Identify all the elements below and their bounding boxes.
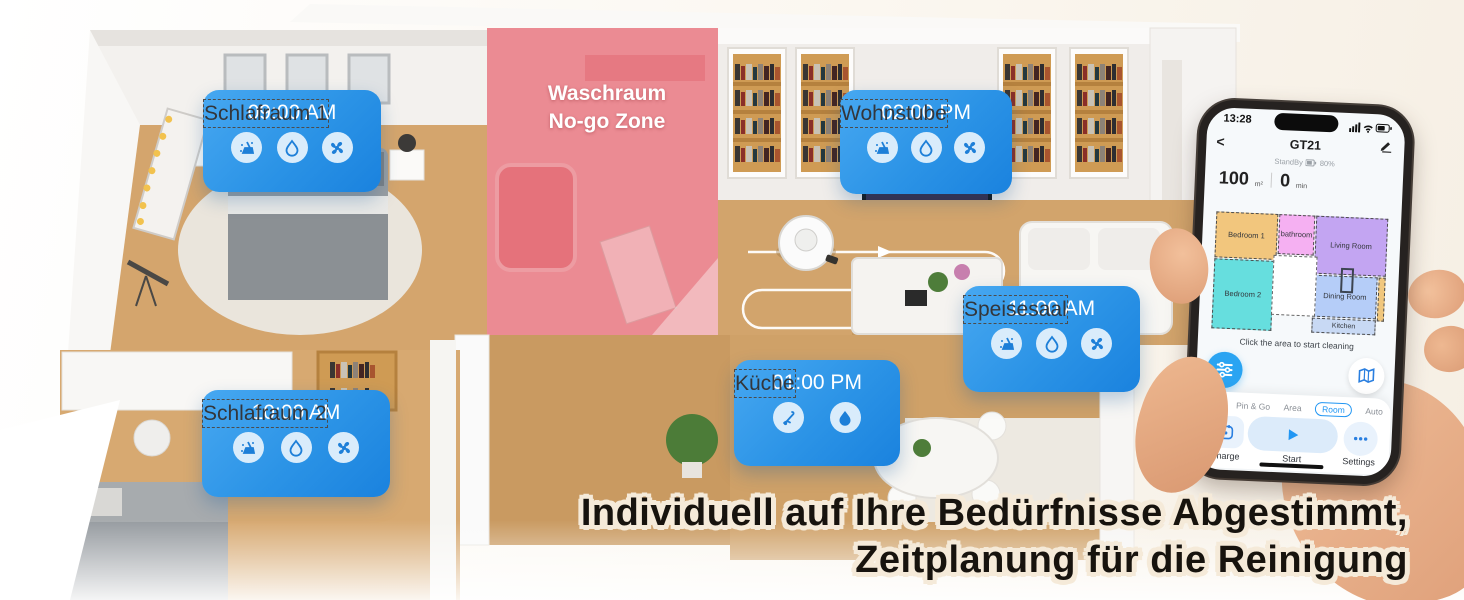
card-room-name: Schlafraum 2 (202, 399, 328, 428)
water-drop-icon (911, 132, 942, 163)
time-value: 0 (1280, 170, 1291, 191)
card-room-name: Wohnstube (840, 99, 948, 128)
map-icon (1357, 367, 1376, 386)
water-drop-icon (281, 432, 312, 463)
app-floor-map: Bedroom 1 bathroom Living Room Bedroom 2… (1211, 211, 1388, 336)
schedule-card-schlafraum-2: Schlafraum 2 10:00 AM (202, 390, 390, 497)
area-unit: m² (1254, 181, 1263, 190)
tab-area[interactable]: Area (1283, 402, 1301, 413)
map-room-bedroom1[interactable]: Bedroom 1 (1214, 211, 1278, 260)
mop-icon (773, 402, 804, 433)
promo-image: Waschraum No-go Zone Schlafraum 1 09:00 … (0, 0, 1464, 600)
map-hint-text: Click the area to start cleaning (1198, 335, 1396, 354)
map-room-bedroom2[interactable]: Bedroom 2 (1211, 258, 1274, 331)
no-go-zone-label: Waschraum No-go Zone (497, 80, 717, 136)
tab-room[interactable]: Room (1315, 402, 1352, 418)
water-drop-icon (277, 132, 308, 163)
fan-icon (328, 432, 359, 463)
sweep-icon (867, 132, 898, 163)
battery-icon (1376, 124, 1392, 132)
map-manage-button[interactable] (1348, 357, 1386, 395)
no-go-zone-title: Waschraum (497, 80, 717, 108)
card-room-name: Schlafraum 1 (203, 99, 329, 128)
time-unit: min (1296, 183, 1308, 192)
no-go-zone-overlay (487, 28, 718, 335)
map-table-marker (1340, 268, 1354, 294)
fan-icon (322, 132, 353, 163)
schedule-card-kueche: Küche 01:00 PM (734, 360, 900, 466)
schedule-card-wohnstube: Wohnstube 02:00 PM (840, 90, 1012, 194)
device-battery: 80% (1320, 159, 1335, 169)
signal-icon (1349, 122, 1360, 132)
sweep-icon (233, 432, 264, 463)
cleaning-stats: 100 m² 0 min (1218, 167, 1307, 192)
phone-notch (1274, 113, 1339, 133)
water-drop-icon (830, 402, 861, 433)
map-room-diningroom[interactable]: Dining Room (1312, 275, 1378, 320)
map-hallway (1271, 255, 1318, 317)
fan-icon (954, 132, 985, 163)
no-go-zone-subtitle: No-go Zone (497, 108, 717, 136)
statusbar-time: 13:28 (1223, 113, 1252, 126)
fan-icon (1081, 328, 1112, 359)
water-drop-icon (1036, 328, 1067, 359)
sweep-icon (231, 132, 262, 163)
map-room-kitchen[interactable]: Kitchen (1311, 318, 1376, 336)
settings-button[interactable] (1343, 421, 1378, 456)
sweep-icon (991, 328, 1022, 359)
headline-line1: Individuell auf Ihre Bedürfnisse Abgesti… (581, 490, 1408, 537)
plant (666, 414, 718, 466)
schedule-card-schlafraum-1: Schlafraum 1 09:00 AM (203, 90, 381, 192)
card-room-name: Speisesaal (963, 295, 1068, 324)
wifi-icon (1364, 126, 1372, 130)
statusbar-icons (1349, 119, 1394, 139)
edit-icon[interactable] (1379, 139, 1393, 158)
tab-pin-and-go[interactable]: Pin & Go (1236, 400, 1270, 411)
device-state: StandBy (1274, 157, 1303, 167)
headline-line2: Zeitplanung für die Reinigung (581, 537, 1408, 584)
map-strip (1377, 277, 1386, 321)
tab-auto[interactable]: Auto (1365, 406, 1383, 417)
schedule-card-speisesaal: Speisesaal 11:00 AM (963, 286, 1140, 392)
map-room-bathroom[interactable]: bathroom (1278, 214, 1316, 256)
more-dots-icon (1353, 435, 1369, 442)
start-button[interactable] (1247, 416, 1338, 454)
card-room-name: Küche (734, 369, 796, 398)
play-icon (1285, 428, 1300, 443)
headline: Individuell auf Ihre Bedürfnisse Abgesti… (581, 490, 1408, 584)
battery-small-icon (1306, 159, 1317, 166)
settings-label: Settings (1336, 456, 1380, 468)
area-value: 100 (1218, 167, 1249, 189)
